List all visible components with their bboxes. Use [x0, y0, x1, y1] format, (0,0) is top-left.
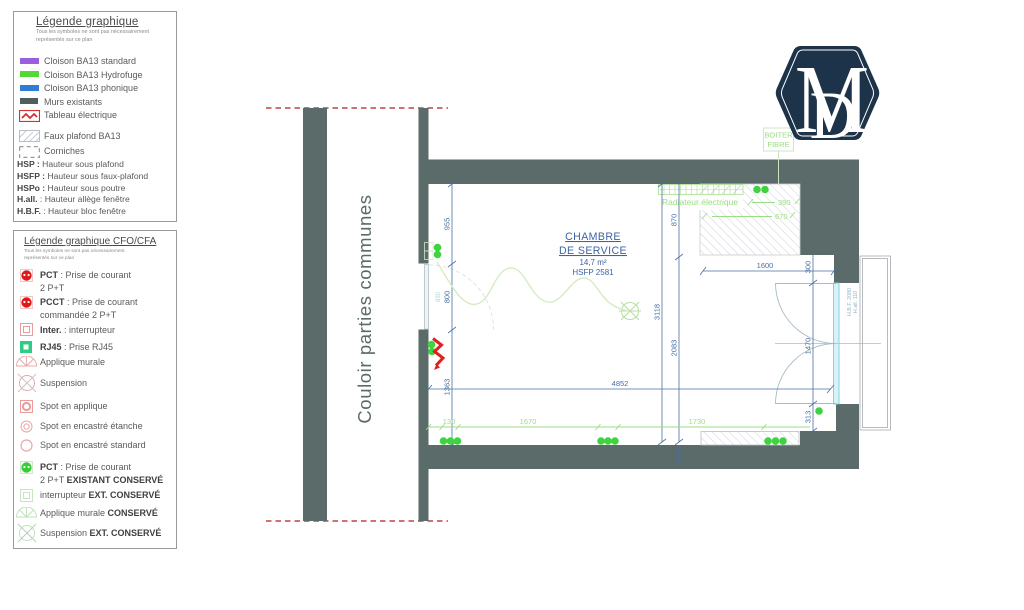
svg-text:670: 670 [775, 212, 788, 221]
svg-text:300: 300 [804, 261, 813, 274]
svg-text:4852: 4852 [612, 379, 629, 388]
svg-text:1470: 1470 [804, 338, 813, 355]
svg-text:Couloir parties communes: Couloir parties communes [354, 194, 375, 423]
svg-text:3118: 3118 [653, 304, 662, 320]
svg-text:BOITER: BOITER [764, 131, 793, 140]
svg-text:2083: 2083 [670, 340, 679, 357]
svg-text:800: 800 [443, 291, 452, 304]
svg-text:870: 870 [670, 214, 679, 227]
svg-text:1670: 1670 [520, 417, 537, 426]
svg-text:FIBRE: FIBRE [767, 140, 789, 149]
svg-text:Radiateur électrique: Radiateur électrique [662, 197, 738, 207]
svg-text:1600: 1600 [757, 261, 774, 270]
svg-text:830: 830 [436, 291, 442, 302]
svg-text:1730: 1730 [689, 417, 706, 426]
svg-text:H.all. 110: H.all. 110 [853, 291, 859, 313]
svg-text:390: 390 [778, 198, 791, 207]
svg-text:CHAMBRE: CHAMBRE [565, 231, 621, 243]
svg-text:M: M [795, 45, 869, 153]
svg-text:130: 130 [443, 417, 456, 426]
svg-text:955: 955 [443, 218, 452, 231]
svg-text:HSFP 2581: HSFP 2581 [572, 268, 614, 277]
svg-text:1363: 1363 [443, 379, 452, 396]
svg-text:313: 313 [804, 411, 813, 424]
svg-text:14,7 m²: 14,7 m² [579, 258, 606, 267]
svg-text:DE SERVICE: DE SERVICE [559, 245, 627, 257]
svg-text:1465: 1465 [674, 447, 683, 464]
